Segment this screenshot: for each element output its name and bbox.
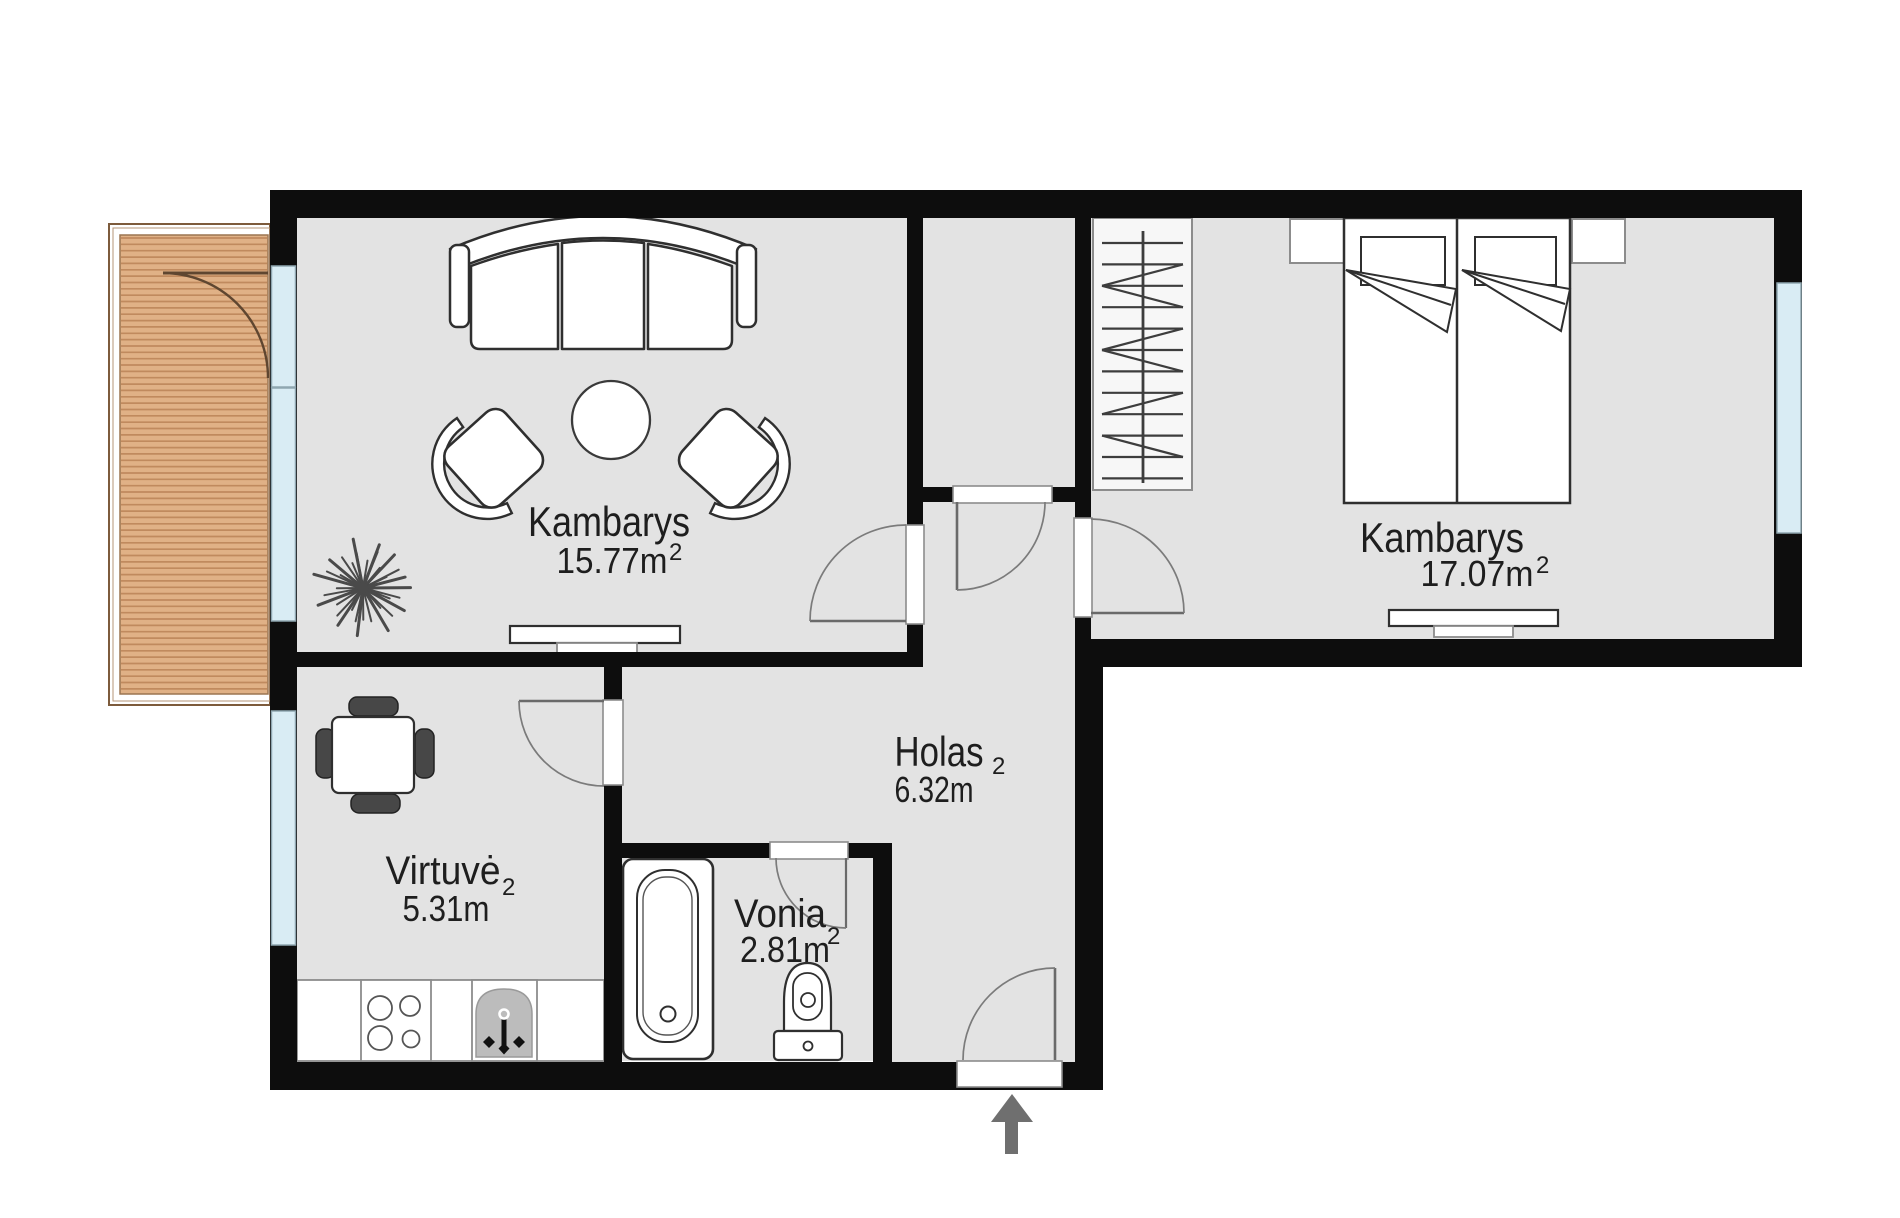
svg-text:Holas: Holas: [895, 728, 984, 775]
svg-text:2.81m: 2.81m: [740, 929, 830, 970]
svg-text:2: 2: [669, 539, 682, 566]
svg-text:Virtuvė: Virtuvė: [386, 849, 501, 893]
svg-text:2: 2: [502, 874, 515, 901]
svg-text:2: 2: [1536, 552, 1549, 579]
svg-text:5.31m: 5.31m: [403, 888, 490, 929]
svg-text:6.32m: 6.32m: [895, 769, 974, 810]
svg-text:17.07m: 17.07m: [1421, 553, 1534, 594]
svg-text:15.77m: 15.77m: [557, 540, 668, 581]
svg-text:2: 2: [992, 753, 1005, 780]
svg-text:Kambarys: Kambarys: [528, 498, 690, 545]
svg-text:2: 2: [827, 923, 840, 950]
